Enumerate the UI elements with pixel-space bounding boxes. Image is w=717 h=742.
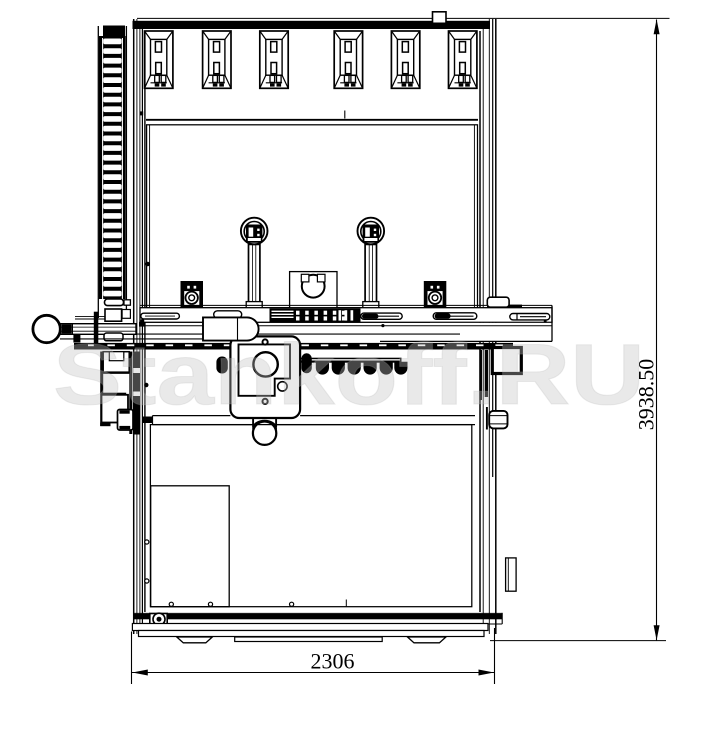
svg-text:Stankoff.RU: Stankoff.RU	[53, 327, 645, 423]
svg-text:2306: 2306	[311, 648, 355, 673]
